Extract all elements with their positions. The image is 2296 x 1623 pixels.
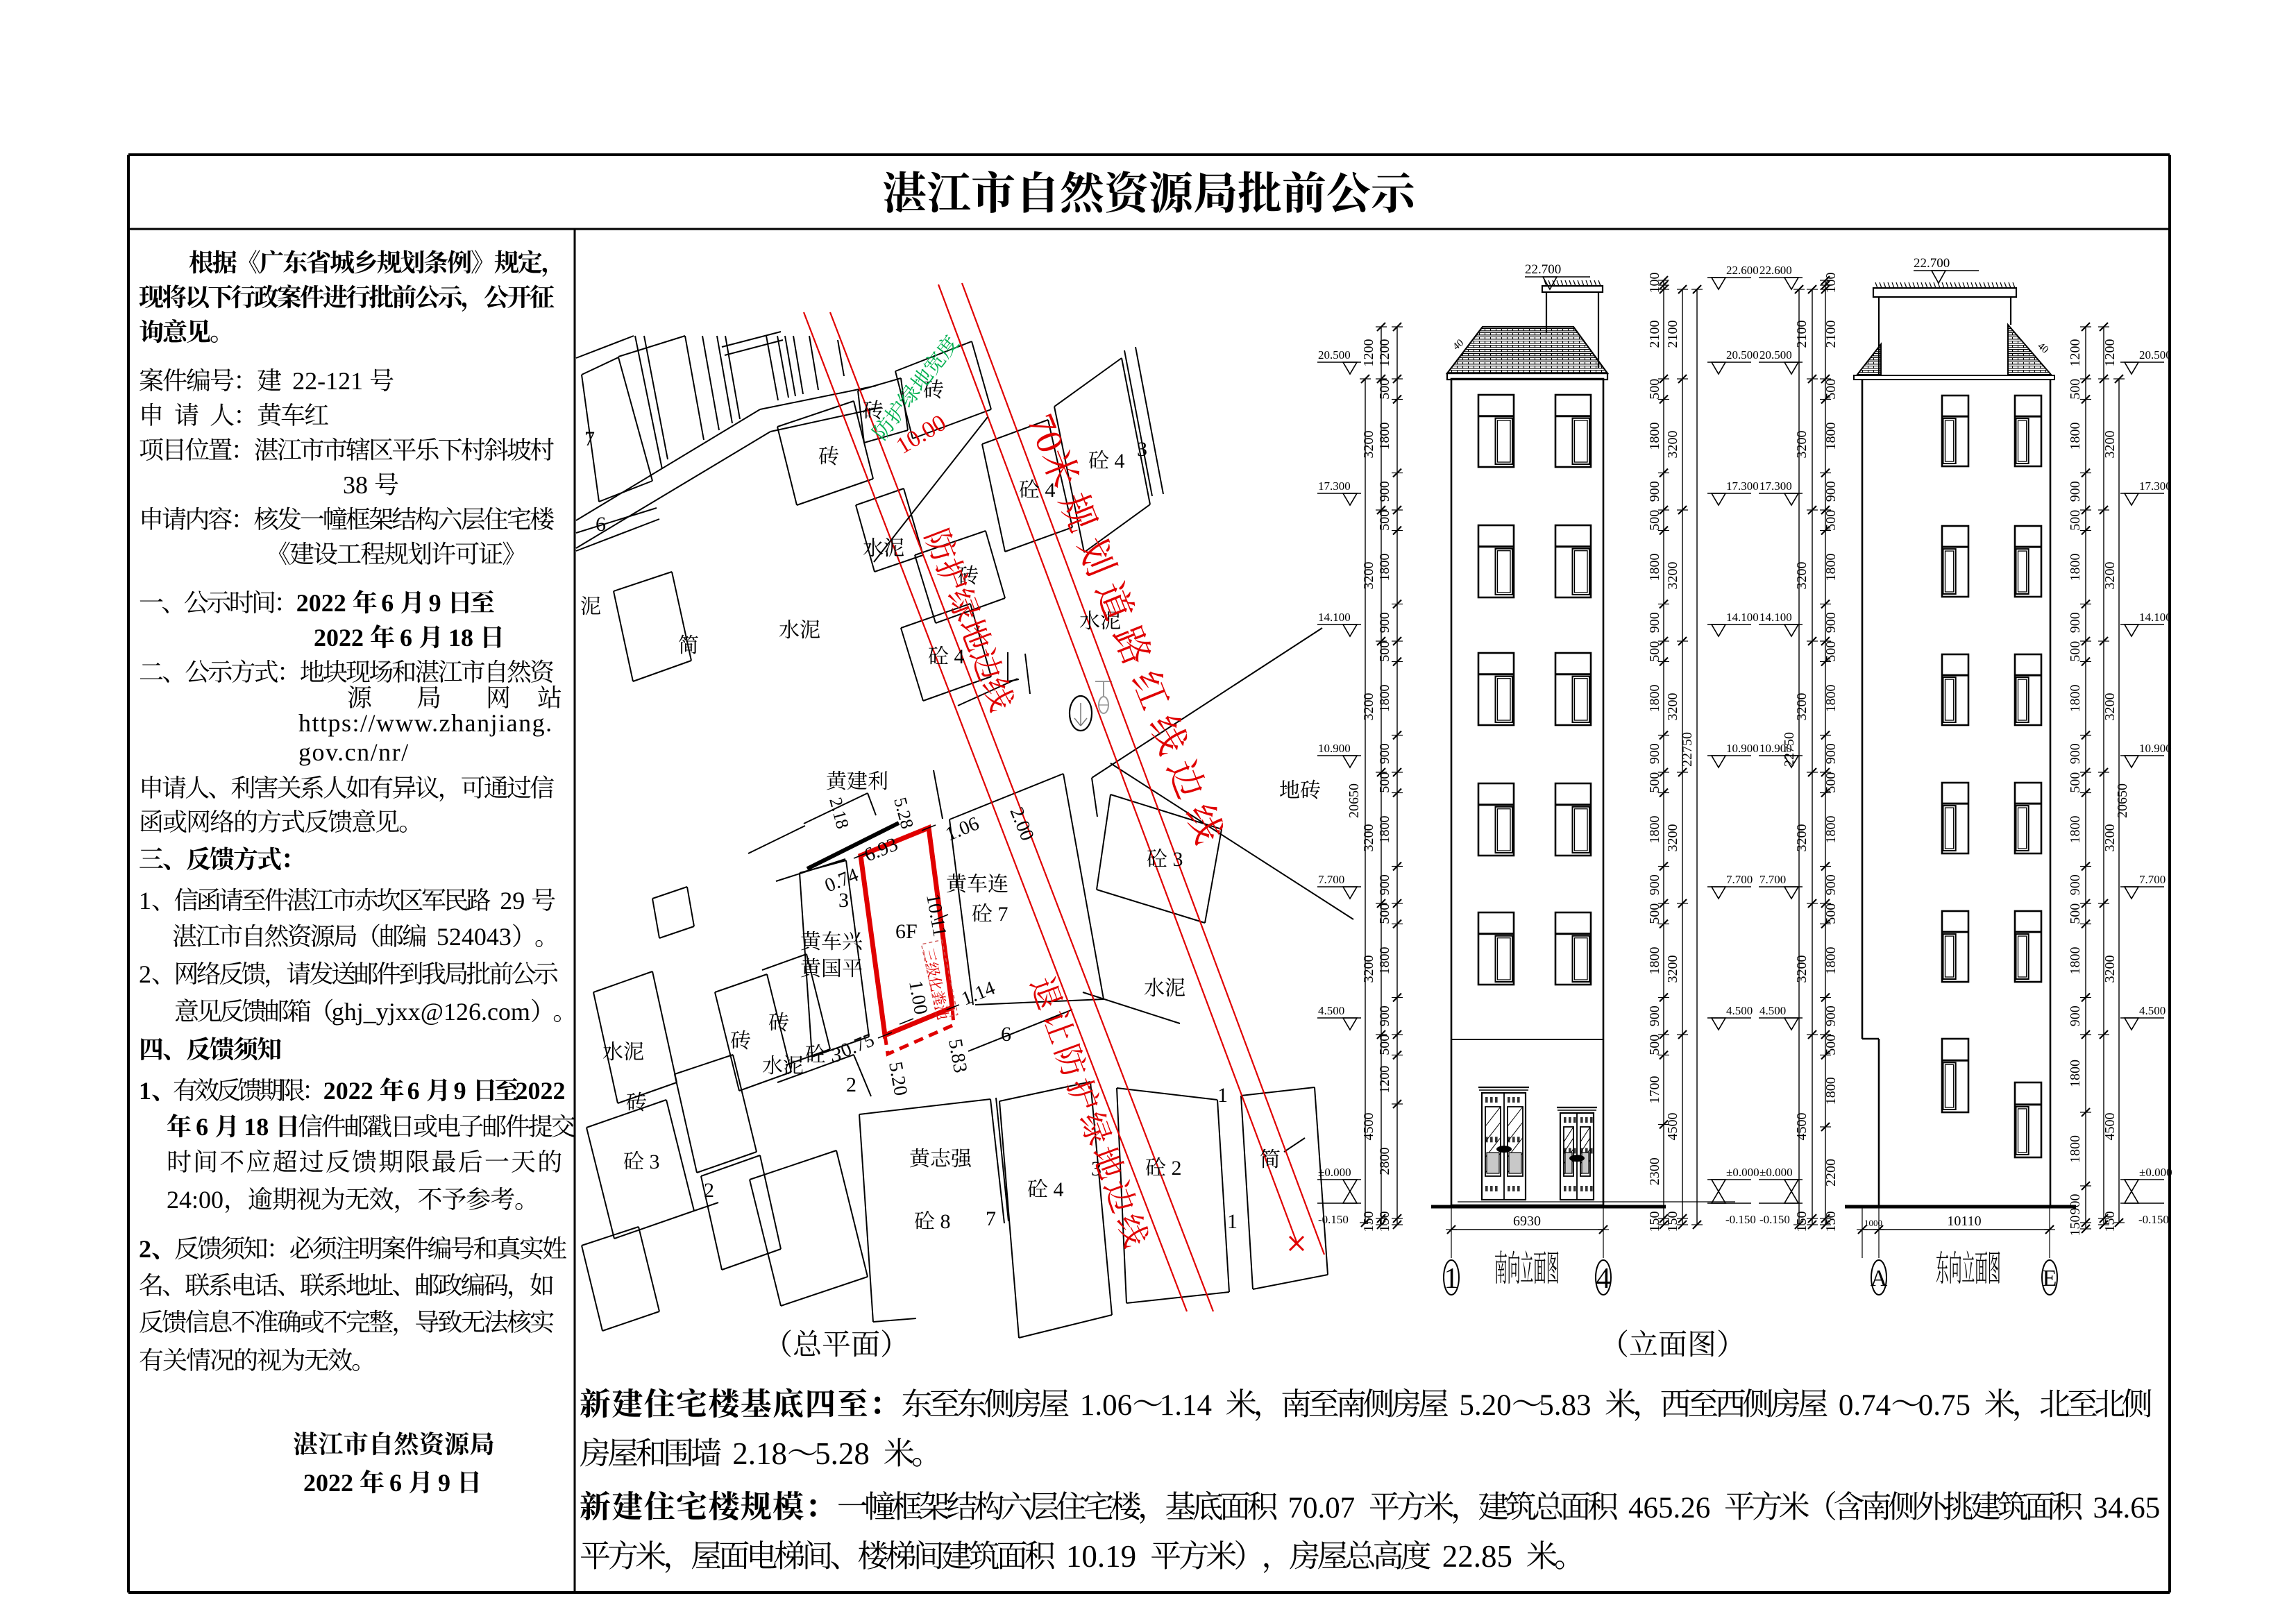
svg-text:2: 2 [704, 1179, 714, 1202]
svg-text:150: 150 [1794, 1212, 1809, 1232]
svg-text:8: 8 [935, 1210, 951, 1233]
svg-text:4500: 4500 [1361, 1113, 1376, 1141]
svg-text:2: 2 [139, 1235, 151, 1263]
svg-text:500: 500 [1823, 1035, 1839, 1055]
svg-text:24:00: 24:00 [167, 1186, 223, 1214]
svg-text:900: 900 [1377, 874, 1392, 895]
svg-text:7.700: 7.700 [2139, 873, 2166, 886]
svg-text:900: 900 [1647, 743, 1662, 764]
svg-text:10.19: 10.19 [1066, 1539, 1136, 1574]
svg-text:4500: 4500 [2102, 1113, 2118, 1141]
svg-text:500: 500 [1377, 772, 1392, 793]
svg-text:0.74: 0.74 [1839, 1389, 1891, 1422]
svg-text:500: 500 [1647, 772, 1662, 793]
svg-text:29: 29 [500, 887, 531, 915]
svg-text:9: 9 [423, 589, 448, 617]
svg-text:18: 18 [442, 624, 480, 652]
svg-text:3200: 3200 [1794, 562, 1809, 590]
svg-text:500: 500 [1377, 903, 1392, 924]
svg-text:±0.000: ±0.000 [1318, 1166, 1351, 1179]
svg-text:500: 500 [1647, 641, 1662, 662]
svg-text:6: 6 [1001, 1023, 1011, 1046]
svg-text:1800: 1800 [1377, 554, 1392, 581]
svg-text:7: 7 [993, 903, 1008, 926]
svg-text:7: 7 [986, 1207, 996, 1230]
svg-text:150: 150 [2068, 1216, 2083, 1237]
svg-text:500: 500 [1377, 379, 1392, 400]
svg-text:4.500: 4.500 [1759, 1004, 1786, 1017]
svg-text:22.600: 22.600 [1759, 264, 1792, 277]
svg-text:1800: 1800 [1823, 1077, 1839, 1105]
svg-text:20.500: 20.500 [2139, 348, 2172, 362]
svg-text:900: 900 [1823, 743, 1839, 764]
svg-text:2100: 2100 [1823, 321, 1839, 348]
svg-text:A: A [1871, 1266, 1888, 1291]
svg-text:500: 500 [1647, 1035, 1662, 1055]
svg-text:900: 900 [1647, 874, 1662, 895]
svg-text:34.65: 34.65 [2093, 1492, 2161, 1524]
svg-text:1800: 1800 [2068, 1135, 2083, 1163]
svg-text:±0.000: ±0.000 [2139, 1166, 2172, 1179]
svg-text:0.75: 0.75 [1918, 1389, 1970, 1422]
svg-text:1800: 1800 [1647, 947, 1662, 975]
svg-text:465.26: 465.26 [1628, 1492, 1710, 1524]
svg-text:5.28: 5.28 [815, 1436, 870, 1471]
svg-text:2.18: 2.18 [732, 1436, 787, 1471]
svg-text:3200: 3200 [1794, 431, 1809, 459]
svg-text:2022: 2022 [296, 589, 353, 617]
svg-text:1: 1 [1444, 1263, 1459, 1295]
svg-text:10110: 10110 [1947, 1214, 1981, 1229]
svg-text:1800: 1800 [2068, 423, 2083, 450]
svg-text:6930: 6930 [1513, 1214, 1541, 1229]
svg-text:22.600: 22.600 [1726, 264, 1759, 277]
svg-text:1800: 1800 [1377, 947, 1392, 975]
svg-text:3200: 3200 [1665, 431, 1680, 459]
svg-text:900: 900 [2068, 481, 2083, 502]
svg-text:1800: 1800 [2068, 685, 2083, 713]
svg-text:1800: 1800 [1647, 554, 1662, 581]
svg-text:6: 6 [375, 589, 400, 617]
svg-text:900: 900 [1377, 1005, 1392, 1026]
svg-text:3: 3 [644, 1150, 660, 1173]
svg-text:3: 3 [1167, 848, 1183, 871]
svg-text:2022: 2022 [516, 1077, 566, 1105]
svg-text:1800: 1800 [1647, 423, 1662, 450]
svg-text:5.20: 5.20 [1459, 1389, 1511, 1422]
svg-text:1800: 1800 [1823, 816, 1839, 844]
svg-text:1800: 1800 [1377, 816, 1392, 844]
svg-text:22.700: 22.700 [1914, 256, 1950, 271]
svg-text:10.900: 10.900 [1726, 742, 1759, 755]
svg-text:900: 900 [1823, 874, 1839, 895]
svg-text:500: 500 [1823, 641, 1839, 662]
svg-text:3200: 3200 [2102, 693, 2118, 721]
svg-text:14.100: 14.100 [2139, 611, 2172, 624]
svg-text:7.700: 7.700 [1726, 873, 1753, 886]
svg-text:150: 150 [1665, 1212, 1680, 1232]
svg-text:1800: 1800 [1377, 685, 1392, 713]
svg-text:3200: 3200 [1361, 955, 1376, 983]
svg-text:3200: 3200 [1665, 824, 1680, 852]
svg-text:17.300: 17.300 [1726, 479, 1759, 493]
svg-text:100: 100 [1647, 273, 1662, 294]
svg-text:2200: 2200 [1823, 1159, 1839, 1187]
svg-text:1200: 1200 [1377, 1066, 1392, 1094]
svg-text:14.100: 14.100 [1759, 611, 1792, 624]
svg-text:38: 38 [343, 471, 374, 499]
svg-text:6: 6 [383, 1469, 408, 1497]
svg-text:6: 6 [596, 513, 606, 536]
svg-text:4500: 4500 [1665, 1113, 1680, 1141]
svg-text:1800: 1800 [2068, 554, 2083, 581]
svg-text:-0.150: -0.150 [1725, 1213, 1756, 1226]
svg-text:-0.150: -0.150 [1318, 1213, 1349, 1226]
svg-text:20.500: 20.500 [1759, 348, 1792, 362]
svg-text:1800: 1800 [1823, 554, 1839, 581]
svg-text:900: 900 [1647, 481, 1662, 502]
svg-text:500: 500 [1647, 379, 1662, 400]
svg-text:5.83: 5.83 [1539, 1389, 1591, 1422]
svg-text:900: 900 [2068, 1005, 2083, 1026]
svg-text:4.500: 4.500 [2139, 1004, 2166, 1017]
svg-text:2: 2 [139, 960, 151, 988]
svg-text:3: 3 [1137, 438, 1147, 461]
svg-text:1800: 1800 [1823, 685, 1839, 713]
svg-text:500: 500 [2068, 641, 2083, 662]
svg-text:-0.150: -0.150 [2138, 1213, 2169, 1226]
svg-text:500: 500 [2068, 772, 2083, 793]
svg-text:100: 100 [1823, 273, 1839, 294]
svg-text:500: 500 [1647, 510, 1662, 531]
svg-text:14.100: 14.100 [1726, 611, 1759, 624]
svg-text:3200: 3200 [1794, 693, 1809, 721]
svg-text:6: 6 [189, 1113, 214, 1141]
svg-text:22.85: 22.85 [1442, 1539, 1512, 1574]
svg-text:3200: 3200 [2102, 955, 2118, 983]
svg-text:1800: 1800 [1647, 816, 1662, 844]
svg-text:ghj_yjxx@126.com: ghj_yjxx@126.com [332, 998, 530, 1026]
svg-text:3200: 3200 [2102, 431, 2118, 459]
svg-text:18: 18 [237, 1113, 275, 1141]
svg-text:3200: 3200 [1361, 824, 1376, 852]
svg-text:17.300: 17.300 [1318, 479, 1351, 493]
svg-text:9: 9 [448, 1077, 473, 1105]
svg-text:1800: 1800 [1647, 685, 1662, 713]
svg-text:2022: 2022 [323, 1077, 380, 1105]
svg-text:3200: 3200 [1665, 693, 1680, 721]
svg-text:14.100: 14.100 [1318, 611, 1351, 624]
svg-text:E: E [2043, 1266, 2057, 1291]
svg-text:500: 500 [2068, 903, 2083, 924]
svg-text:22.700: 22.700 [1525, 262, 1561, 277]
svg-text:20650: 20650 [2115, 783, 2130, 818]
svg-text:900: 900 [1823, 612, 1839, 633]
svg-text:22750: 22750 [1680, 732, 1695, 767]
svg-text:20650: 20650 [1347, 783, 1362, 818]
svg-text:3200: 3200 [1665, 562, 1680, 590]
svg-text:1: 1 [139, 1077, 151, 1105]
svg-text:3200: 3200 [2102, 562, 2118, 590]
svg-text:17.300: 17.300 [1759, 479, 1792, 493]
svg-text:150: 150 [1647, 1212, 1662, 1232]
svg-text:2100: 2100 [1647, 321, 1662, 348]
svg-text:1.14: 1.14 [1160, 1389, 1212, 1422]
svg-text:900: 900 [1647, 612, 1662, 633]
svg-text:3200: 3200 [1361, 693, 1376, 721]
svg-text:1800: 1800 [2068, 947, 2083, 975]
svg-text:4: 4 [949, 645, 965, 668]
svg-text:2022: 2022 [303, 1469, 360, 1497]
svg-text:900: 900 [1377, 481, 1392, 502]
svg-text:7: 7 [584, 427, 595, 450]
svg-text:1200: 1200 [2102, 339, 2118, 367]
svg-text:500: 500 [1377, 641, 1392, 662]
svg-text:500: 500 [1377, 510, 1392, 531]
svg-text:https://www.zhanjiang.: https://www.zhanjiang. [298, 709, 553, 737]
svg-text:4: 4 [1109, 450, 1125, 473]
svg-text:3200: 3200 [1361, 431, 1376, 459]
svg-text:1200: 1200 [1377, 339, 1392, 367]
svg-text:500: 500 [1823, 510, 1839, 531]
svg-text:1800: 1800 [2068, 816, 2083, 844]
svg-text:1800: 1800 [1377, 423, 1392, 450]
svg-text:6F: 6F [895, 920, 918, 943]
svg-text:22-121: 22-121 [292, 367, 369, 395]
svg-text:900: 900 [1823, 481, 1839, 502]
svg-text:4.500: 4.500 [1318, 1004, 1344, 1017]
svg-text:900: 900 [2068, 612, 2083, 633]
svg-text:1800: 1800 [1823, 423, 1839, 450]
svg-text:6: 6 [394, 624, 419, 652]
svg-text:1700: 1700 [1647, 1076, 1662, 1104]
svg-text:6: 6 [401, 1077, 426, 1105]
svg-text:3200: 3200 [1794, 824, 1809, 852]
svg-text:1000: 1000 [1864, 1218, 1882, 1228]
svg-text:3200: 3200 [2102, 824, 2118, 852]
svg-text:7.700: 7.700 [1318, 873, 1344, 886]
svg-text:900: 900 [2068, 1194, 2083, 1215]
svg-text:1: 1 [139, 887, 151, 915]
svg-text:900: 900 [1377, 743, 1392, 764]
svg-text:3200: 3200 [1361, 562, 1376, 590]
svg-text:17.300: 17.300 [2139, 479, 2172, 493]
svg-text:2300: 2300 [1647, 1157, 1662, 1185]
svg-text:4500: 4500 [1794, 1113, 1809, 1141]
svg-text:70.07: 70.07 [1288, 1492, 1356, 1524]
svg-text:900: 900 [2068, 874, 2083, 895]
svg-text:-0.150: -0.150 [1759, 1213, 1790, 1226]
svg-text:2800: 2800 [1377, 1148, 1392, 1175]
svg-text:1: 1 [1227, 1210, 1238, 1233]
svg-text:900: 900 [1647, 1005, 1662, 1026]
svg-text:150: 150 [1361, 1212, 1376, 1232]
svg-text:4: 4 [1040, 479, 1056, 502]
svg-text:150: 150 [2102, 1212, 2118, 1232]
svg-text:500: 500 [1823, 379, 1839, 400]
svg-text:gov.cn/nr/: gov.cn/nr/ [298, 738, 410, 766]
svg-text:1.06: 1.06 [1080, 1389, 1132, 1422]
svg-text:10.900: 10.900 [1759, 742, 1792, 755]
svg-text:3200: 3200 [1794, 955, 1809, 983]
svg-text:4.500: 4.500 [1726, 1004, 1753, 1017]
svg-text:1800: 1800 [1823, 947, 1839, 975]
svg-text:4: 4 [1596, 1263, 1611, 1295]
svg-text:1200: 1200 [2068, 339, 2083, 367]
svg-text:500: 500 [2068, 510, 2083, 531]
svg-text:1800: 1800 [2068, 1060, 2083, 1087]
svg-text:10.900: 10.900 [2139, 742, 2172, 755]
svg-text:500: 500 [1823, 772, 1839, 793]
svg-text:7.700: 7.700 [1759, 873, 1786, 886]
svg-text:10.900: 10.900 [1318, 742, 1351, 755]
svg-text:4: 4 [1048, 1178, 1064, 1201]
svg-text:900: 900 [2068, 743, 2083, 764]
svg-text:150: 150 [1823, 1212, 1839, 1232]
svg-text:2100: 2100 [1665, 321, 1680, 348]
svg-text:1200: 1200 [1361, 339, 1376, 367]
svg-text:2: 2 [846, 1073, 856, 1096]
svg-text:500: 500 [2068, 379, 2083, 400]
svg-text:±0.000: ±0.000 [1726, 1166, 1759, 1179]
svg-text:3200: 3200 [1665, 955, 1680, 983]
svg-text:±0.000: ±0.000 [1759, 1166, 1793, 1179]
svg-text:1: 1 [1217, 1084, 1228, 1107]
svg-text:900: 900 [1377, 612, 1392, 633]
svg-text:500: 500 [1647, 903, 1662, 924]
svg-text:500: 500 [1377, 1035, 1392, 1055]
svg-text:2100: 2100 [1794, 321, 1809, 348]
svg-text:500: 500 [1823, 903, 1839, 924]
svg-text:20.500: 20.500 [1726, 348, 1759, 362]
svg-text:9: 9 [432, 1469, 457, 1497]
svg-text:524043: 524043 [437, 923, 512, 951]
svg-text:2022: 2022 [314, 624, 370, 652]
svg-text:2: 2 [1166, 1157, 1182, 1180]
svg-text:900: 900 [1823, 1005, 1839, 1026]
svg-text:20.500: 20.500 [1318, 348, 1351, 362]
